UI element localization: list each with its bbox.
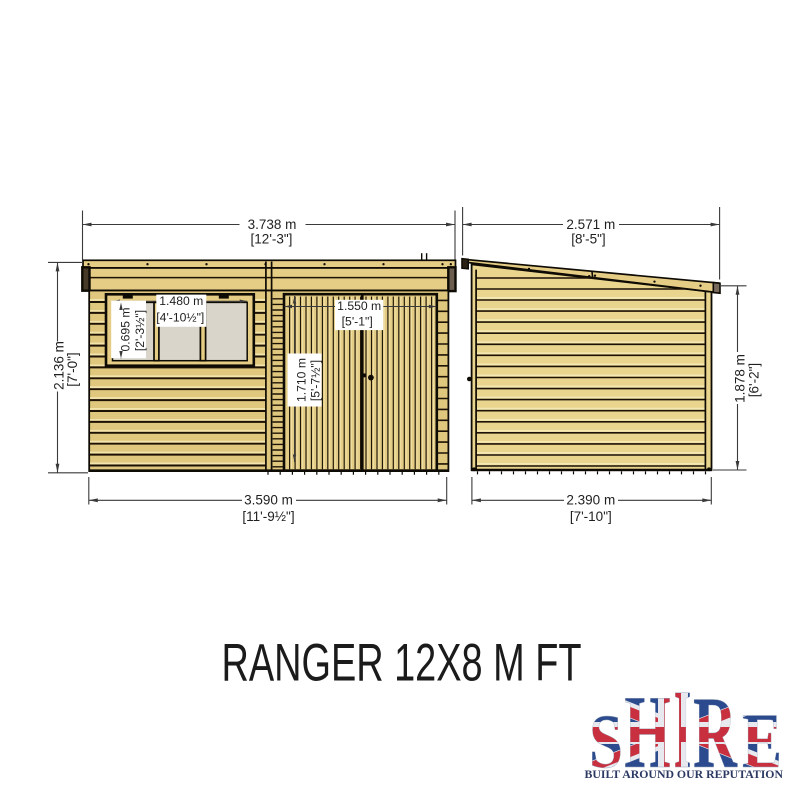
svg-text:1.878 m: 1.878 m (732, 354, 747, 403)
svg-text:2.390 m: 2.390 m (566, 492, 615, 507)
svg-text:[7'-0"]: [7'-0"] (65, 352, 80, 386)
svg-text:[5'-1"]: [5'-1"] (342, 315, 373, 329)
svg-text:RANGER 12X8 M FT: RANGER 12X8 M FT (222, 634, 582, 693)
svg-text:[2'-3½"]: [2'-3½"] (133, 310, 147, 351)
svg-text:[11'-9½"]: [11'-9½"] (242, 509, 294, 524)
svg-text:[7'-10"]: [7'-10"] (570, 509, 612, 524)
svg-text:1.710 m: 1.710 m (294, 358, 308, 402)
svg-text:1.480 m: 1.480 m (159, 294, 203, 308)
svg-text:[6'-2"]: [6'-2"] (746, 363, 761, 397)
svg-text:[5'-7½"]: [5'-7½"] (308, 360, 322, 401)
svg-text:1.550 m: 1.550 m (337, 299, 381, 313)
svg-text:[12'-3"]: [12'-3"] (251, 232, 293, 247)
svg-text:0.695 m: 0.695 m (119, 307, 133, 351)
svg-text:[8'-5"]: [8'-5"] (571, 232, 605, 247)
svg-text:3.590 m: 3.590 m (244, 492, 293, 507)
svg-text:[4'-10½"]: [4'-10½"] (156, 311, 204, 325)
svg-text:2.571 m: 2.571 m (566, 217, 615, 232)
svg-text:3.738 m: 3.738 m (248, 217, 297, 232)
svg-text:BUILT AROUND OUR REPUTATION: BUILT AROUND OUR REPUTATION (585, 767, 784, 781)
